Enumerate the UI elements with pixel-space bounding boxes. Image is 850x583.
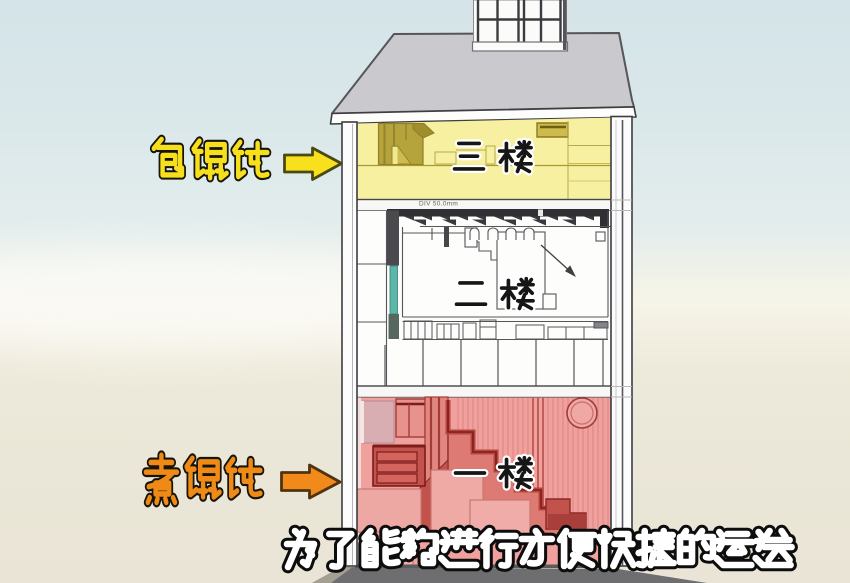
svg-text:DIV 50.0mm: DIV 50.0mm	[419, 201, 458, 208]
